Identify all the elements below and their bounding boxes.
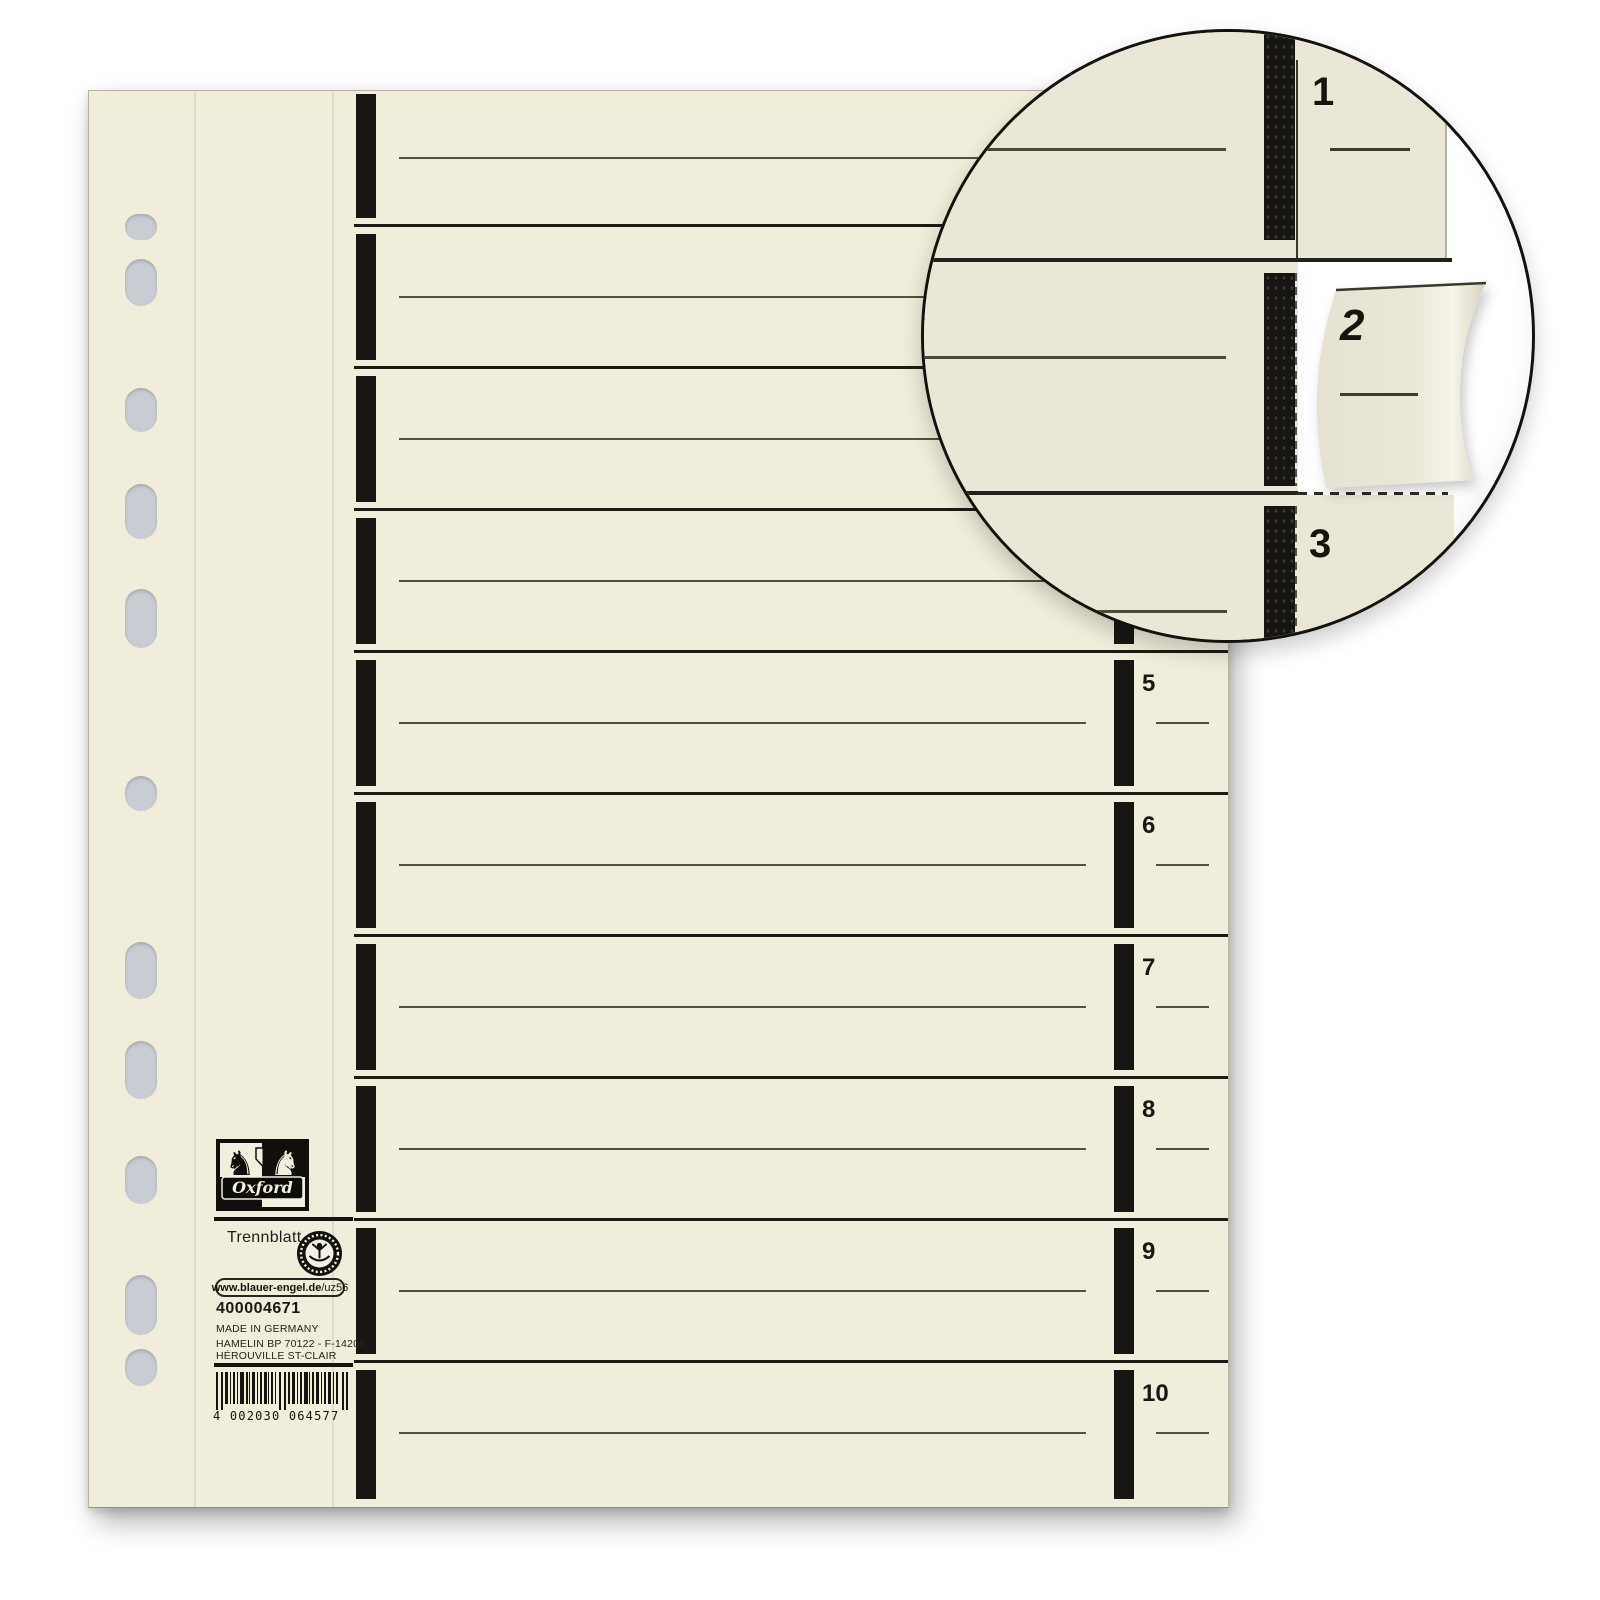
punch-hole xyxy=(125,942,157,999)
index-stripe-right xyxy=(1114,1228,1134,1354)
tab-writing-line xyxy=(1156,864,1209,866)
tab-number-5: 5 xyxy=(1142,672,1155,696)
punch-hole xyxy=(125,214,157,240)
writing-line xyxy=(399,864,1086,866)
punch-hole xyxy=(125,589,157,648)
product-name: Trennblatt xyxy=(227,1229,301,1247)
tab-writing-line xyxy=(1156,1148,1209,1150)
index-stripe-left xyxy=(356,376,376,502)
punch-hole xyxy=(125,1156,157,1204)
ean-barcode xyxy=(216,1372,348,1410)
index-stripe-right xyxy=(1114,1086,1134,1212)
eco-label-url-suffix: /uz56 xyxy=(321,1282,348,1294)
inset-tab-number-2: 2 xyxy=(1340,304,1364,348)
manufacturer-address-1: HAMELIN BP 70122 - F-14204 xyxy=(216,1338,365,1350)
tab-number-7: 7 xyxy=(1142,956,1155,980)
inset-tab-number-1: 1 xyxy=(1312,72,1334,112)
tab-number-9: 9 xyxy=(1142,1240,1155,1264)
inset-tab-number-3: 3 xyxy=(1309,524,1331,564)
index-stripe-left xyxy=(356,660,376,786)
tab-writing-line xyxy=(1156,1432,1209,1434)
section-divider-line xyxy=(354,1076,1228,1079)
writing-line xyxy=(399,1006,1086,1008)
product-photo: 12345678910 ♞ ♞ Oxford Trennblatt xyxy=(0,0,1600,1600)
oxford-logo-graphic: ♞ ♞ xyxy=(216,1139,309,1211)
tab-number-6: 6 xyxy=(1142,814,1155,838)
index-stripe-right xyxy=(1114,1370,1134,1499)
rule-line xyxy=(214,1217,353,1221)
index-stripe-left xyxy=(356,802,376,928)
writing-line xyxy=(399,1290,1086,1292)
index-stripe-left xyxy=(356,518,376,644)
punch-hole xyxy=(125,1041,157,1099)
peeled-tab-piece xyxy=(924,32,1532,640)
index-stripe-right xyxy=(1114,660,1134,786)
section-divider-line xyxy=(354,1218,1228,1221)
punch-hole xyxy=(125,259,157,306)
blauer-engel-badge xyxy=(296,1230,343,1277)
index-stripe-right xyxy=(1114,802,1134,928)
manufacturer-address-2: HÉROUVILLE ST-CLAIR xyxy=(216,1350,337,1362)
fold-crease xyxy=(194,91,196,1507)
punch-hole xyxy=(125,776,157,811)
punch-hole xyxy=(125,1275,157,1335)
made-in-label: MADE IN GERMANY xyxy=(216,1323,319,1335)
writing-line xyxy=(399,722,1086,724)
barcode-digits: 4 002030 064577 xyxy=(213,1409,353,1423)
tab-writing-line xyxy=(1156,1290,1209,1292)
tab-writing-line xyxy=(1156,1006,1209,1008)
oxford-wordmark: Oxford xyxy=(224,1178,301,1198)
index-stripe-left xyxy=(356,234,376,360)
section-divider-line xyxy=(354,1360,1228,1363)
section-divider-line xyxy=(354,934,1228,937)
index-stripe-left xyxy=(356,94,376,218)
rule-line xyxy=(214,1363,353,1367)
writing-line xyxy=(399,1432,1086,1434)
index-stripe-left xyxy=(356,1228,376,1354)
punch-hole xyxy=(125,484,157,539)
index-stripe-right xyxy=(1114,944,1134,1070)
punch-hole xyxy=(125,1349,157,1386)
index-stripe-left xyxy=(356,1086,376,1212)
index-stripe-left xyxy=(356,944,376,1070)
writing-line xyxy=(399,1148,1086,1150)
eco-label-url: www.blauer-engel.de/uz56 xyxy=(215,1278,345,1297)
tab-number-10: 10 xyxy=(1142,1382,1169,1406)
eco-label-url-bold: www.blauer-engel.de xyxy=(212,1282,322,1294)
article-number: 400004671 xyxy=(216,1300,301,1318)
section-divider-line xyxy=(354,792,1228,795)
index-stripe-left xyxy=(356,1370,376,1499)
tab-number-8: 8 xyxy=(1142,1098,1155,1122)
oxford-logo: ♞ ♞ Oxford xyxy=(216,1139,309,1211)
punch-hole xyxy=(125,388,157,432)
tab-writing-line xyxy=(1156,722,1209,724)
peeled-tab-writing-line xyxy=(1340,393,1418,396)
magnifier-inset: 1 2 3 xyxy=(921,29,1535,643)
section-divider-line xyxy=(354,650,1228,653)
